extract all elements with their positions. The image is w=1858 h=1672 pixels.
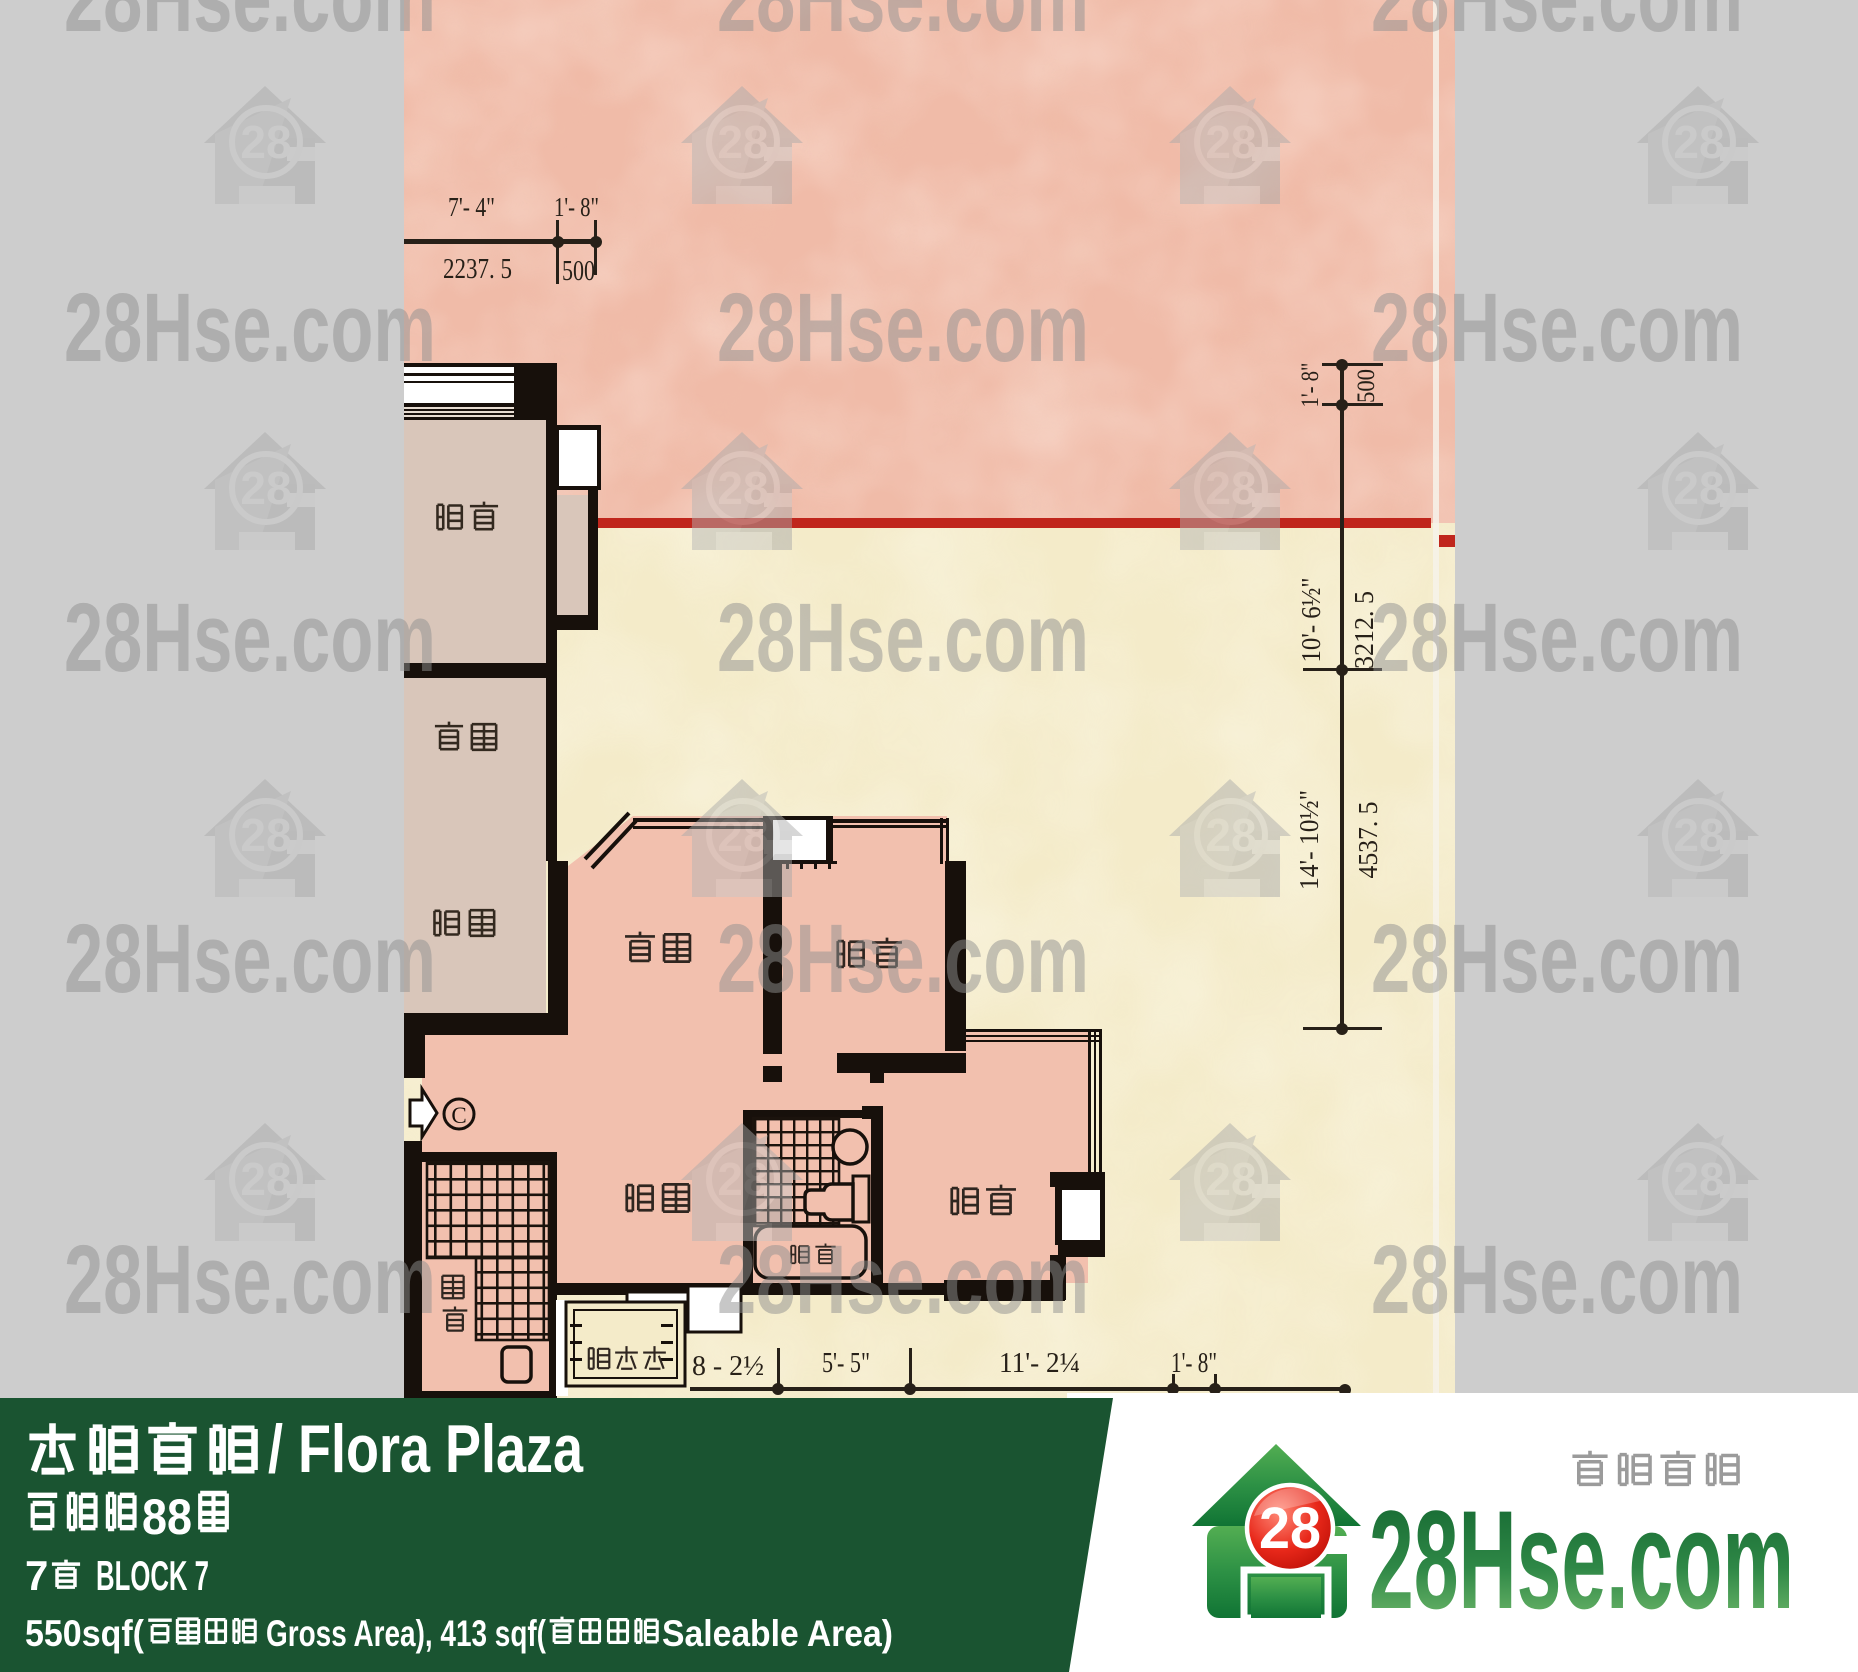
svg-text:C: C [451,1103,466,1128]
svg-text:10'- 6½": 10'- 6½" [1296,578,1326,663]
svg-text:5'- 5": 5'- 5" [822,1348,870,1379]
svg-text:88: 88 [142,1489,192,1545]
svg-text:7: 7 [25,1552,48,1599]
svg-text:550sqf(: 550sqf( [25,1613,145,1654]
svg-text:7'- 4": 7'- 4" [448,192,495,222]
svg-text:/ Flora Plaza: / Flora Plaza [268,1411,584,1487]
svg-text:8 - 2½: 8 - 2½ [692,1351,764,1382]
svg-text:4537. 5: 4537. 5 [1353,802,1383,879]
svg-text:28: 28 [1259,1496,1321,1561]
svg-text:2237. 5: 2237. 5 [443,254,512,285]
svg-text:28Hse.com: 28Hse.com [1369,1481,1794,1638]
svg-text:BLOCK 7: BLOCK 7 [96,1552,209,1599]
svg-text:500: 500 [562,256,595,287]
svg-text:11'- 2¼: 11'- 2¼ [999,1348,1080,1379]
svg-text:14'- 10½": 14'- 10½" [1294,790,1324,890]
svg-text:Saleable Area): Saleable Area) [662,1613,893,1654]
svg-text:1'- 8": 1'- 8" [1297,363,1324,408]
svg-text:1'- 8": 1'- 8" [554,192,599,222]
svg-text:1'- 8": 1'- 8" [1171,1348,1217,1379]
svg-text:Gross Area), 413 sqf(: Gross Area), 413 sqf( [266,1613,547,1654]
